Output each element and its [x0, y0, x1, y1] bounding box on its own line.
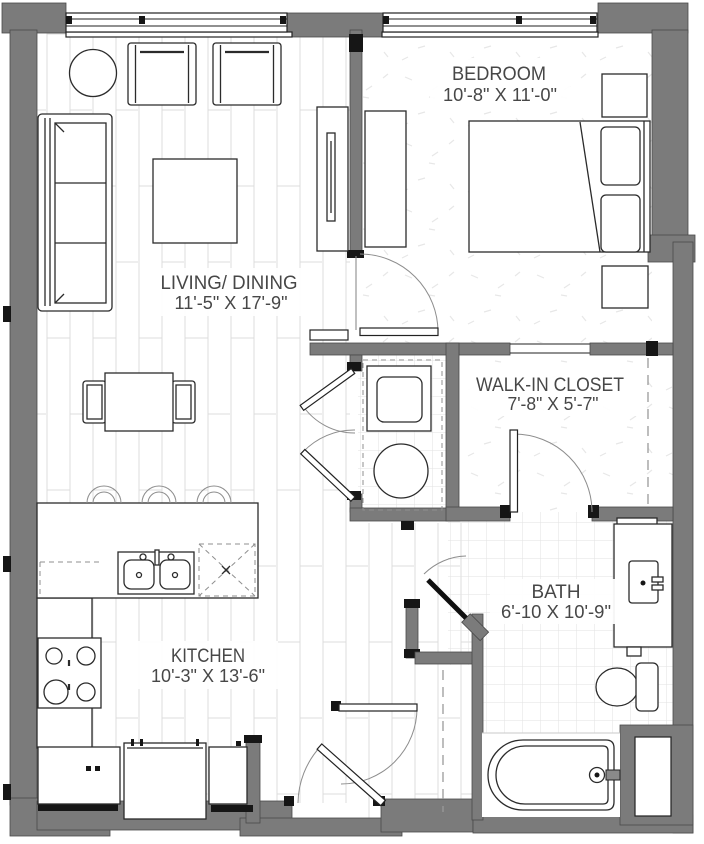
pillow [601, 127, 640, 185]
room-name: BEDROOM [452, 63, 546, 85]
wall-nub [3, 556, 11, 572]
wall-left [10, 30, 37, 805]
floor-plan-drawing: BEDROOM 10'-8" X 11'-0" LIVING/ DINING 1… [0, 0, 704, 844]
wall-cap [646, 341, 658, 356]
cased-opening [510, 344, 590, 353]
double-sink [118, 550, 194, 594]
wall-cap [349, 34, 363, 52]
tub-faucet [606, 770, 620, 780]
wall-pier-top [287, 13, 383, 37]
washer [367, 366, 431, 431]
wall-laundry-right [446, 343, 459, 521]
drain [641, 581, 646, 586]
wall-thin-under-window-left [66, 32, 292, 37]
sofa [38, 114, 112, 311]
floor-plan: BEDROOM 10'-8" X 11'-0" LIVING/ DINING 1… [0, 0, 704, 844]
wall-laundry-top [310, 343, 510, 355]
wall-walkin-top [590, 343, 673, 355]
window-living [66, 13, 287, 32]
window-bedroom [383, 13, 597, 32]
faucet [652, 577, 663, 582]
base-cabinet [38, 747, 120, 804]
toilet-tank [636, 663, 658, 711]
label-kitchen: KITCHEN 10'-3" X 13'-6" [138, 641, 278, 689]
room-name: LIVING/ DINING [161, 272, 298, 294]
wall-corner-top-left [2, 3, 66, 33]
nightstand [602, 266, 648, 308]
dining-set [83, 373, 195, 431]
tv-console [317, 107, 348, 251]
room-name: KITCHEN [171, 645, 245, 667]
wall-bottom-center [381, 799, 473, 832]
refrigerator [124, 739, 206, 819]
faucet [652, 585, 663, 590]
dining-table [105, 373, 173, 431]
room-dims: 10'-8" X 11'-0" [443, 84, 557, 105]
base-bar [211, 805, 253, 812]
nightstand [602, 74, 647, 117]
door-leaf [510, 430, 518, 512]
label-living: LIVING/ DINING 11'-5" X 17'-9" [144, 268, 316, 316]
wall-cap [284, 796, 294, 806]
dresser [365, 111, 406, 247]
room-dims: 7'-8" X 5'-7" [508, 393, 599, 414]
label-bedroom: BEDROOM 10'-8" X 11'-0" [430, 58, 570, 108]
wall-corner-top-right [598, 3, 688, 33]
bathtub [482, 733, 620, 817]
room-dims: 10'-3" X 13'-6" [151, 665, 265, 686]
armchair [128, 43, 196, 105]
base-cabinet [209, 741, 247, 804]
toilet-bowl [596, 668, 638, 706]
label-bath: BATH 6'-10 X 10'-9" [490, 579, 624, 624]
wall-hall-closet-right [472, 614, 483, 820]
room-name: BATH [532, 581, 581, 603]
door-leaf [339, 704, 417, 711]
wall-thin-under-window-right [382, 32, 598, 37]
wall-cap [401, 521, 414, 530]
wall-bottom-entry [240, 818, 402, 836]
door-header [310, 330, 348, 340]
wall-nub [3, 306, 11, 322]
plumbing-niche [635, 737, 671, 816]
vanity-foot [627, 647, 641, 656]
range-stove [38, 638, 101, 708]
faucet [155, 550, 159, 565]
dryer [374, 444, 428, 498]
wall-nub [3, 784, 11, 800]
room-dims: 11'-5" X 17'-9" [175, 292, 288, 313]
label-walkin: WALK-IN CLOSET 7'-8" X 5'-7" [466, 371, 640, 416]
pillow [601, 195, 640, 252]
round-side-table [70, 50, 117, 97]
room-dims: 6'-10 X 10'-9" [501, 601, 611, 622]
wall-right-upper [652, 30, 688, 242]
wall-cap [244, 735, 262, 743]
bed [469, 121, 650, 252]
wall-divider-living-bedroom [350, 30, 362, 254]
wall-cap [404, 599, 420, 608]
wall-cap [588, 505, 599, 518]
coffee-table [153, 159, 237, 243]
door-leaf [360, 328, 438, 336]
armchair [213, 43, 281, 105]
wall-cap [500, 505, 511, 518]
